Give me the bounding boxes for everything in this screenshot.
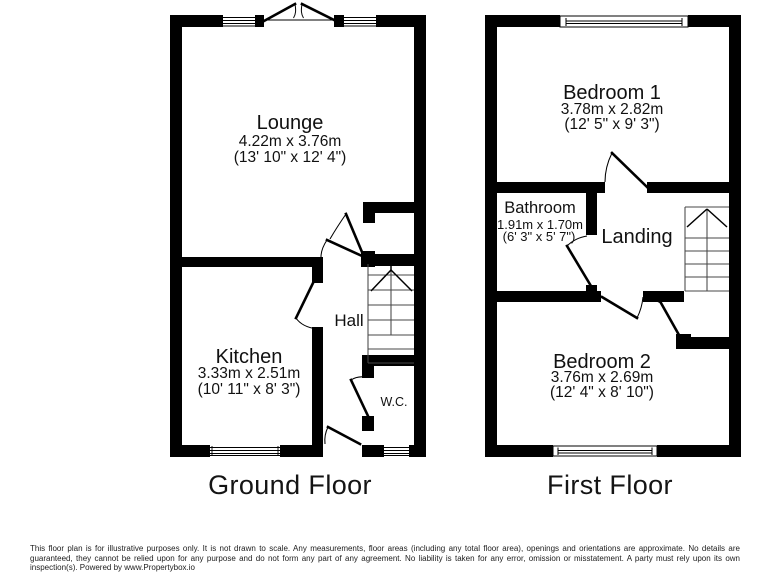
bedroom1-imperial-dims: (12' 5" x 9' 3"): [564, 116, 659, 134]
bedroom2-imperial-dims: (12' 4" x 8' 10"): [550, 384, 654, 402]
bathroom-imperial-dims: (6' 3" x 5' 7"): [503, 229, 576, 244]
bathroom-label: Bathroom: [504, 199, 576, 218]
wc-label: W.C.: [380, 395, 407, 409]
ground-stairs: [368, 262, 414, 363]
lounge-label: Lounge: [257, 112, 324, 135]
first-floor-title: First Floor: [547, 470, 673, 501]
hall-label: Hall: [334, 311, 363, 331]
landing-label: Landing: [601, 226, 672, 249]
kitchen-imperial-dims: (10' 11" x 8' 3"): [198, 381, 301, 399]
ground-floor-title: Ground Floor: [208, 470, 372, 501]
first-stairs: [685, 207, 729, 291]
ground-patio-doors: [264, 4, 334, 21]
floor-plan-page: Lounge 4.22m x 3.76m (13' 10" x 12' 4") …: [0, 0, 768, 576]
disclaimer-text: This floor plan is for illustrative purp…: [30, 544, 740, 573]
lounge-imperial-dims: (13' 10" x 12' 4"): [234, 149, 347, 167]
